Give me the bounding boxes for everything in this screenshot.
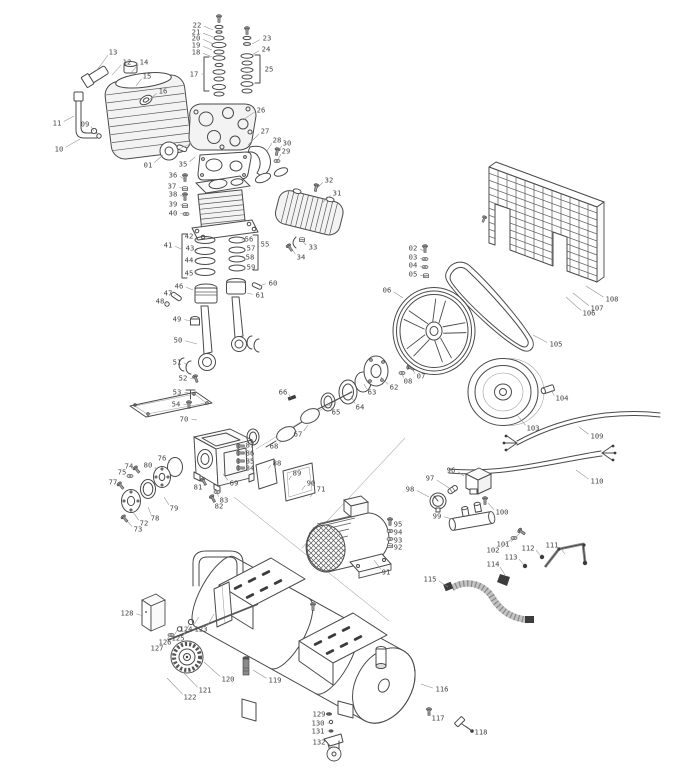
power-cords bbox=[449, 412, 660, 474]
part-label-55: 55 bbox=[261, 239, 270, 248]
part-label-36: 36 bbox=[169, 170, 178, 179]
leader-line-70 bbox=[191, 419, 197, 420]
part-label-91: 91 bbox=[382, 567, 391, 576]
part-label-53: 53 bbox=[173, 387, 182, 396]
tank-leg-plug bbox=[376, 647, 386, 669]
part-label-76: 76 bbox=[158, 453, 167, 462]
part-label-62: 62 bbox=[390, 382, 399, 391]
part-label-56: 56 bbox=[245, 234, 254, 243]
part-label-46: 46 bbox=[175, 281, 184, 290]
part-label-08: 08 bbox=[404, 376, 413, 385]
part-label-127: 127 bbox=[151, 643, 164, 652]
part-label-04: 04 bbox=[409, 260, 418, 269]
leader-line-28 bbox=[267, 143, 272, 151]
caster-wheel bbox=[324, 734, 343, 761]
part-label-30: 30 bbox=[283, 138, 292, 147]
part-label-39: 39 bbox=[169, 199, 178, 208]
leader-line-18 bbox=[203, 53, 212, 57]
leader-line-20 bbox=[203, 39, 213, 44]
part-label-80: 80 bbox=[144, 460, 153, 469]
part-label-27: 27 bbox=[261, 126, 270, 135]
part-label-64: 64 bbox=[356, 402, 365, 411]
part-label-120: 120 bbox=[222, 674, 235, 683]
part-label-16: 16 bbox=[159, 86, 168, 95]
head-gasket bbox=[198, 152, 251, 180]
leader-line-72 bbox=[133, 512, 139, 520]
part-label-35: 35 bbox=[179, 159, 188, 168]
part-label-89: 89 bbox=[293, 468, 302, 477]
part-label-117: 117 bbox=[432, 713, 445, 722]
leader-line-41 bbox=[175, 246, 181, 249]
leader-line-116 bbox=[421, 684, 433, 688]
leader-line-23 bbox=[252, 40, 260, 44]
leader-line-120 bbox=[204, 662, 220, 677]
leader-line-98 bbox=[417, 491, 429, 497]
part-label-96: 96 bbox=[447, 465, 456, 474]
breather-tube bbox=[74, 92, 101, 138]
part-label-124: 124 bbox=[180, 624, 193, 633]
cylinder-head bbox=[189, 104, 256, 150]
part-label-128: 128 bbox=[121, 608, 134, 617]
part-label-125: 125 bbox=[172, 633, 185, 642]
leader-line-107 bbox=[573, 293, 589, 306]
leader-line-24 bbox=[252, 51, 259, 55]
leader-line-119 bbox=[253, 670, 266, 678]
part-label-118: 118 bbox=[475, 727, 488, 736]
part-label-42: 42 bbox=[185, 231, 194, 240]
part-label-29: 29 bbox=[282, 146, 291, 155]
part-label-104: 104 bbox=[556, 393, 569, 402]
part-label-28: 28 bbox=[273, 135, 282, 144]
discharge-pipe bbox=[497, 543, 587, 586]
part-label-14: 14 bbox=[140, 57, 149, 66]
part-label-15: 15 bbox=[143, 71, 152, 80]
leader-line-79 bbox=[164, 497, 169, 505]
part-label-110: 110 bbox=[591, 476, 604, 485]
part-label-24: 24 bbox=[262, 44, 271, 53]
leader-line-50 bbox=[185, 341, 197, 344]
part-label-10: 10 bbox=[55, 144, 64, 153]
part-label-61: 61 bbox=[256, 290, 265, 299]
leader-line-106 bbox=[566, 297, 581, 311]
part-label-58: 58 bbox=[246, 252, 255, 261]
part-label-69: 69 bbox=[230, 478, 239, 487]
part-label-122: 122 bbox=[184, 692, 197, 701]
part-label-26: 26 bbox=[257, 105, 266, 114]
pressure-switch-assembly bbox=[430, 468, 526, 540]
crankshaft bbox=[247, 356, 415, 447]
leader-line-19 bbox=[203, 46, 212, 50]
part-label-95: 95 bbox=[394, 519, 403, 528]
part-label-50: 50 bbox=[174, 335, 183, 344]
part-label-60: 60 bbox=[269, 278, 278, 287]
part-label-59: 59 bbox=[247, 262, 256, 271]
leader-line-61 bbox=[247, 293, 253, 294]
part-label-112: 112 bbox=[522, 543, 535, 552]
leader-line-88 bbox=[268, 465, 271, 469]
part-label-97: 97 bbox=[426, 473, 435, 482]
exploded-parts-diagram-page: 0102030405060708091011121314151617181920… bbox=[0, 0, 686, 768]
leader-line-121 bbox=[183, 672, 198, 687]
part-label-25: 25 bbox=[265, 64, 274, 73]
bracket-17 bbox=[204, 57, 209, 91]
leader-line-12 bbox=[112, 65, 121, 75]
part-label-93: 93 bbox=[394, 535, 403, 544]
part-label-108: 108 bbox=[606, 294, 619, 303]
bracket-25 bbox=[255, 55, 260, 83]
part-label-23: 23 bbox=[263, 33, 272, 42]
part-label-85: 85 bbox=[246, 456, 255, 465]
part-label-40: 40 bbox=[169, 208, 178, 217]
part-label-77: 77 bbox=[109, 477, 118, 486]
part-label-71: 71 bbox=[317, 484, 326, 493]
leader-line-35 bbox=[189, 157, 195, 162]
flywheel bbox=[393, 245, 475, 375]
part-label-73: 73 bbox=[134, 524, 143, 533]
connecting-rods bbox=[179, 297, 259, 408]
part-label-103: 103 bbox=[527, 423, 540, 432]
part-label-45: 45 bbox=[185, 268, 194, 277]
part-label-88: 88 bbox=[273, 458, 282, 467]
part-label-11: 11 bbox=[53, 118, 62, 127]
cylinder-block bbox=[182, 174, 258, 240]
compressor-exploded-diagram: 0102030405060708091011121314151617181920… bbox=[0, 0, 686, 768]
pressure-gauge bbox=[430, 493, 446, 512]
leader-line-63 bbox=[364, 384, 367, 389]
part-label-68: 68 bbox=[270, 441, 279, 450]
part-label-98: 98 bbox=[406, 484, 415, 493]
part-label-113: 113 bbox=[505, 552, 518, 561]
part-label-81: 81 bbox=[194, 482, 203, 491]
part-label-63: 63 bbox=[368, 387, 377, 396]
part-label-66: 66 bbox=[279, 387, 288, 396]
leader-line-113 bbox=[519, 559, 524, 565]
part-label-47: 47 bbox=[164, 288, 173, 297]
part-label-38: 38 bbox=[169, 189, 178, 198]
part-label-07: 07 bbox=[417, 371, 426, 380]
part-label-79: 79 bbox=[170, 503, 179, 512]
part-label-22: 22 bbox=[193, 20, 202, 29]
part-label-102: 102 bbox=[487, 545, 500, 554]
leader-line-122 bbox=[167, 678, 183, 694]
part-label-116: 116 bbox=[436, 684, 449, 693]
leader-line-80 bbox=[155, 467, 156, 469]
leader-line-110 bbox=[576, 470, 589, 479]
leader-line-21 bbox=[203, 33, 213, 37]
part-label-32: 32 bbox=[325, 175, 334, 184]
part-label-65: 65 bbox=[332, 407, 341, 416]
leader-line-06 bbox=[394, 292, 403, 298]
part-label-105: 105 bbox=[550, 339, 563, 348]
leader-line-114 bbox=[500, 567, 505, 575]
part-label-99: 99 bbox=[433, 511, 442, 520]
part-label-57: 57 bbox=[247, 243, 256, 252]
part-label-100: 100 bbox=[496, 507, 509, 516]
part-label-87: 87 bbox=[246, 440, 255, 449]
part-label-34: 34 bbox=[297, 252, 306, 261]
valve-stacks bbox=[204, 15, 260, 96]
part-label-49: 49 bbox=[173, 314, 182, 323]
motor-pulley bbox=[468, 359, 555, 426]
leader-line-36 bbox=[180, 176, 184, 179]
spare-part-box bbox=[142, 594, 165, 631]
part-label-78: 78 bbox=[151, 513, 160, 522]
leader-line-100 bbox=[488, 503, 494, 510]
part-label-43: 43 bbox=[186, 243, 195, 252]
part-label-94: 94 bbox=[394, 527, 403, 536]
part-label-44: 44 bbox=[185, 255, 194, 264]
leader-line-118 bbox=[466, 726, 472, 730]
part-label-109: 109 bbox=[591, 431, 604, 440]
leader-line-54 bbox=[183, 404, 188, 405]
leader-line-108 bbox=[586, 286, 604, 297]
part-label-12: 12 bbox=[123, 57, 132, 66]
part-label-123: 123 bbox=[195, 624, 208, 633]
tank-bolt bbox=[243, 656, 250, 675]
leader-line-99 bbox=[444, 517, 452, 519]
part-label-02: 02 bbox=[409, 243, 418, 252]
part-label-129: 129 bbox=[313, 709, 326, 718]
part-label-111: 111 bbox=[546, 540, 559, 549]
leader-line-73 bbox=[126, 520, 132, 526]
leader-line-11 bbox=[64, 116, 74, 121]
part-label-70: 70 bbox=[180, 414, 189, 423]
part-label-01: 01 bbox=[144, 160, 153, 169]
part-label-132: 132 bbox=[313, 737, 326, 746]
part-label-114: 114 bbox=[487, 559, 500, 568]
leader-line-10 bbox=[66, 139, 80, 147]
part-label-17: 17 bbox=[190, 69, 199, 78]
part-label-31: 31 bbox=[333, 188, 342, 197]
filter-elbow-fitting bbox=[81, 64, 109, 88]
part-label-09: 09 bbox=[81, 119, 90, 128]
part-label-67: 67 bbox=[294, 429, 303, 438]
leader-line-52 bbox=[190, 378, 194, 379]
part-label-52: 52 bbox=[179, 373, 188, 382]
flex-hose bbox=[443, 582, 534, 623]
part-label-131: 131 bbox=[312, 726, 325, 735]
part-label-05: 05 bbox=[409, 269, 418, 278]
outlet-manifold bbox=[446, 500, 495, 531]
leader-line-22 bbox=[204, 26, 213, 30]
part-label-90: 90 bbox=[307, 478, 316, 487]
part-label-06: 06 bbox=[383, 285, 392, 294]
leader-line-02 bbox=[420, 249, 424, 251]
part-label-119: 119 bbox=[269, 675, 282, 684]
leader-line-109 bbox=[579, 427, 589, 434]
part-label-107: 107 bbox=[591, 303, 604, 312]
part-label-75: 75 bbox=[118, 467, 127, 476]
leader-line-51 bbox=[184, 363, 186, 364]
leader-line-105 bbox=[533, 335, 547, 342]
leader-line-53 bbox=[184, 392, 189, 393]
part-label-86: 86 bbox=[246, 448, 255, 457]
part-label-48: 48 bbox=[156, 296, 165, 305]
part-label-51: 51 bbox=[173, 357, 182, 366]
part-label-121: 121 bbox=[199, 685, 212, 694]
leader-line-01 bbox=[154, 155, 163, 163]
leader-line-67 bbox=[304, 425, 308, 431]
leader-line-46 bbox=[186, 287, 193, 290]
leader-line-112 bbox=[536, 550, 541, 556]
part-label-33: 33 bbox=[309, 242, 318, 251]
part-label-115: 115 bbox=[424, 574, 437, 583]
part-label-41: 41 bbox=[164, 240, 173, 249]
part-label-83: 83 bbox=[220, 495, 229, 504]
part-label-54: 54 bbox=[172, 399, 181, 408]
leader-line-97 bbox=[437, 480, 449, 488]
part-label-13: 13 bbox=[109, 47, 118, 56]
